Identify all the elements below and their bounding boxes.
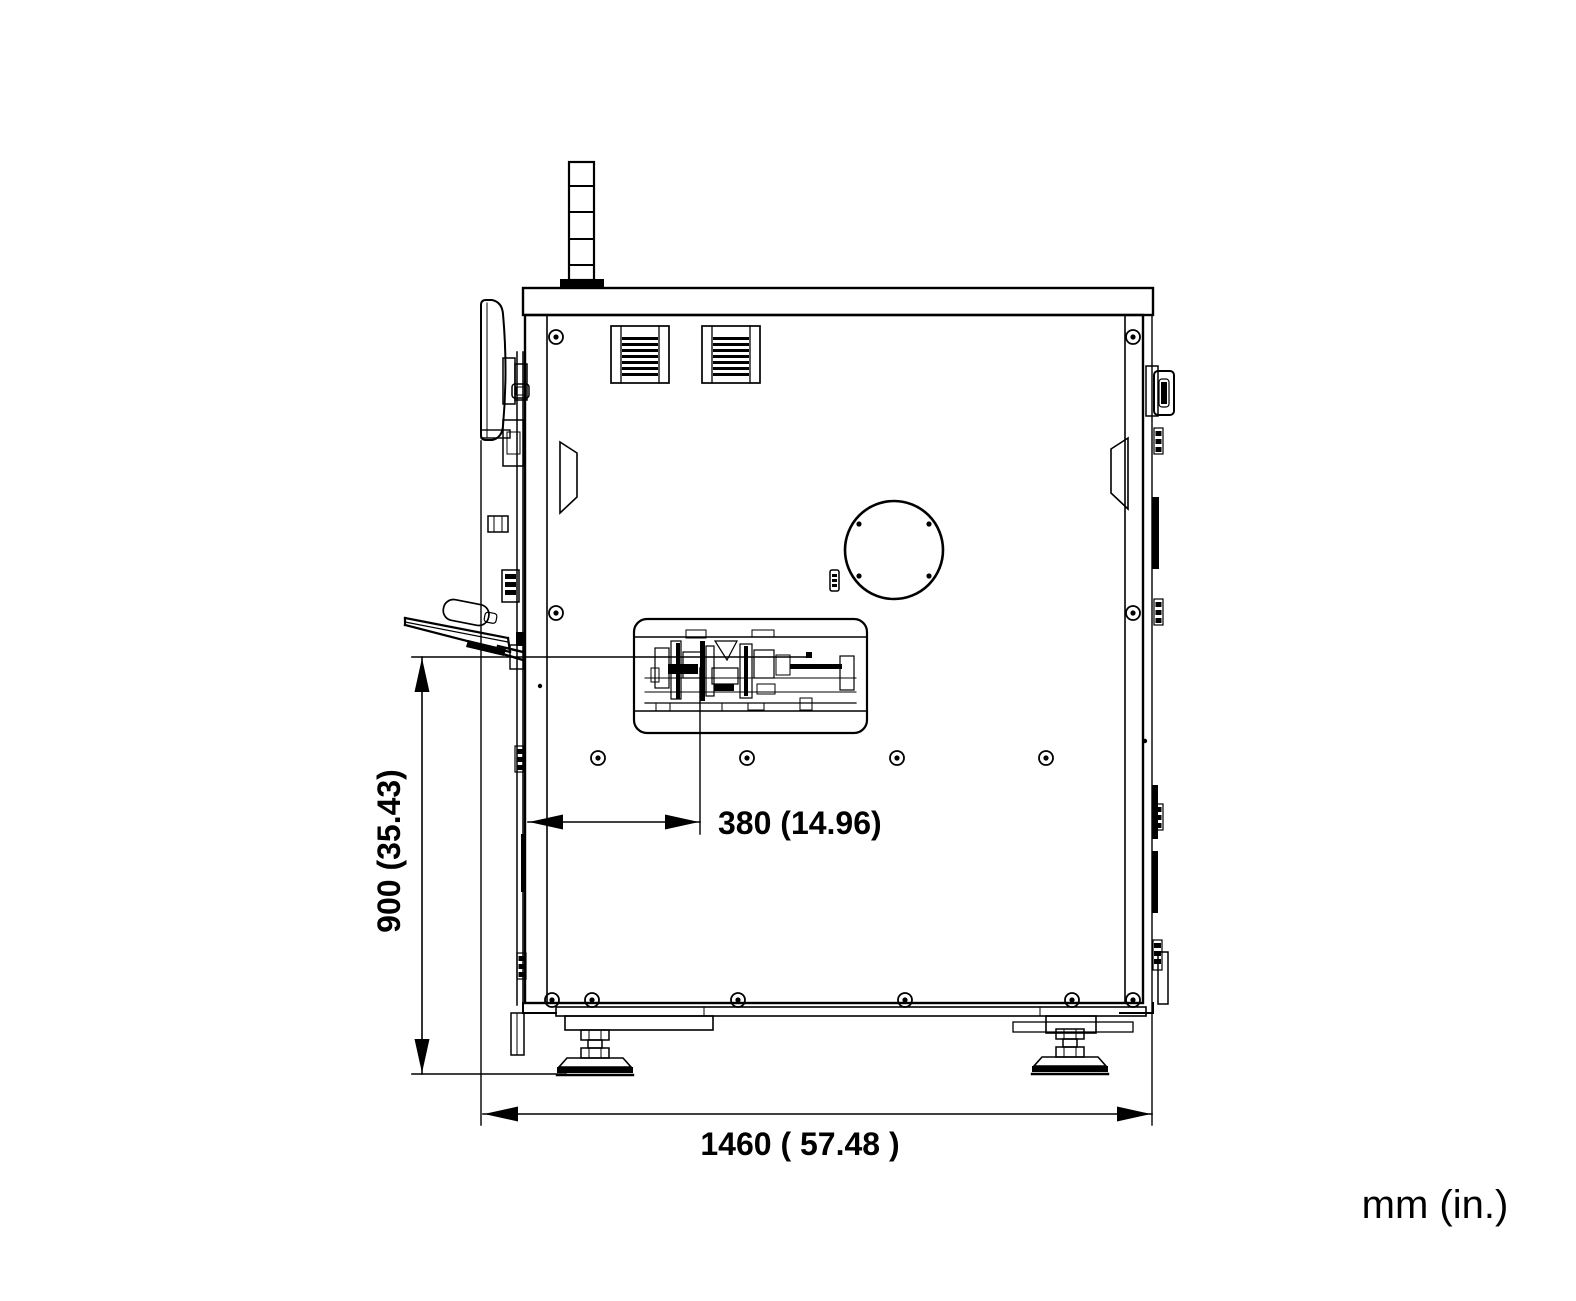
door-clamp	[503, 420, 524, 466]
dim-height-label: 900 (35.43)	[371, 769, 407, 933]
leveling-foot-left	[557, 1030, 633, 1075]
monitor-base-ledge	[481, 430, 510, 438]
dimension-height: 900 (35.43)	[371, 657, 810, 1074]
machine-side-view-drawing: 900 (35.43) 380 (14.96) 1460 ( 57.48 ) m…	[0, 0, 1576, 1301]
engineering-drawing-canvas: 900 (35.43) 380 (14.96) 1460 ( 57.48 ) m…	[0, 0, 1576, 1301]
machine-drawing	[405, 162, 1174, 1075]
base-and-feet	[523, 1003, 1153, 1075]
feeder-mechanism	[645, 630, 856, 711]
dimension-annotations: 900 (35.43) 380 (14.96) 1460 ( 57.48 ) m…	[371, 441, 1508, 1227]
vent-grilles	[611, 326, 760, 383]
keyboard-tray	[405, 598, 524, 669]
dim-width-label: 1460 ( 57.48 )	[700, 1126, 899, 1162]
left-door-hardware	[488, 352, 526, 1055]
fan-opening	[830, 501, 943, 599]
vent-grille-left	[611, 326, 669, 383]
monitor-panel	[481, 300, 506, 440]
door-hinge	[1154, 428, 1163, 454]
units-note: mm (in.)	[1362, 1183, 1509, 1227]
pin-dot	[1143, 739, 1147, 743]
tower-base-flange	[560, 279, 604, 288]
door-seal-strip	[521, 834, 526, 892]
base-rail	[556, 1007, 1146, 1016]
left-recess-indent	[560, 442, 577, 513]
signal-tower	[554, 162, 609, 288]
vent-grille-right	[702, 326, 760, 383]
leveling-foot-right	[1032, 1029, 1108, 1074]
door-seal-strip	[1152, 497, 1159, 569]
mechanism-window	[634, 619, 867, 733]
foot-mount-plate-left	[565, 1016, 713, 1030]
dim-offset-label: 380 (14.96)	[718, 805, 882, 841]
monitor-assembly	[481, 300, 529, 440]
door-hinge	[1154, 599, 1163, 625]
pin-dot	[538, 684, 542, 688]
pointer-mouse	[442, 598, 499, 629]
top-cap	[523, 288, 1153, 315]
door-handle-left	[488, 516, 508, 532]
right-door-hardware	[1146, 366, 1174, 1004]
foot-mount-plate-right	[1046, 1016, 1096, 1033]
